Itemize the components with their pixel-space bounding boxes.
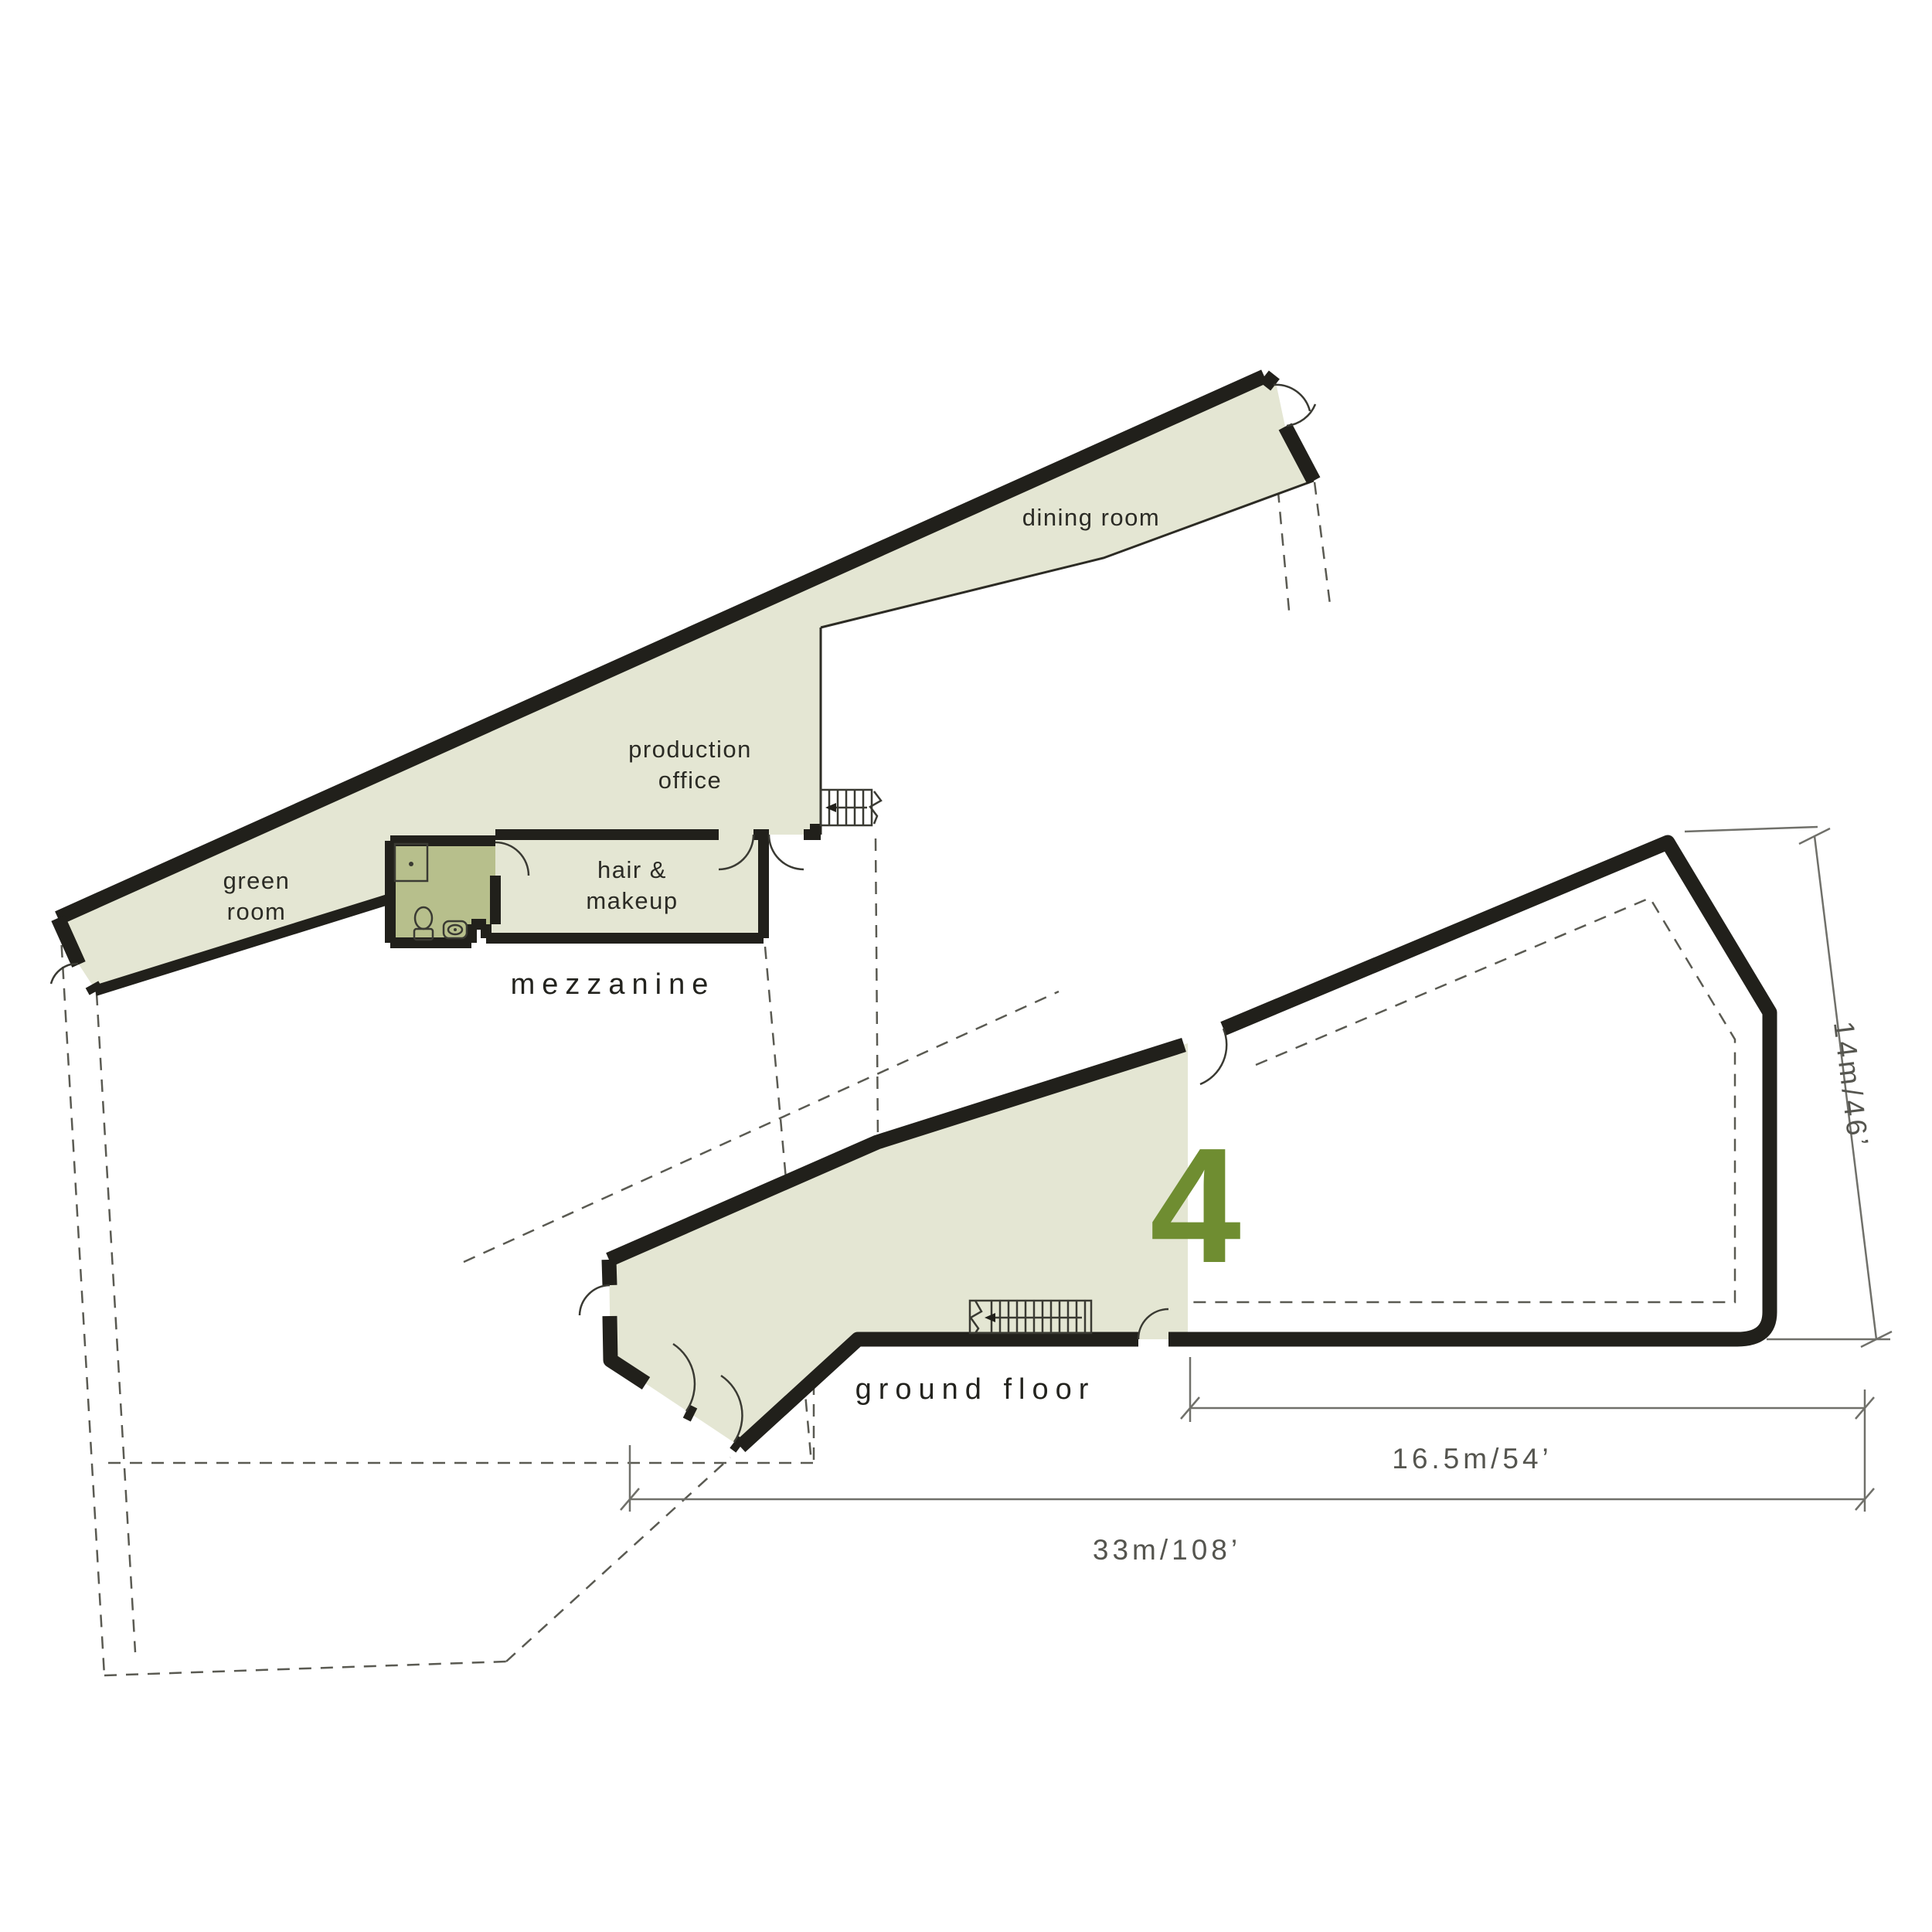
room-label-hair-makeup-line2: makeup — [586, 887, 678, 914]
mezzanine-stairs-icon — [821, 790, 881, 825]
door-swing-icon — [51, 964, 78, 984]
mezzanine-floor-label: mezzanine — [511, 968, 716, 1001]
projection-dashed-line — [1315, 482, 1331, 611]
room-label-green-room-line1: green — [223, 867, 291, 894]
mezzanine-exterior-wall — [1264, 376, 1275, 385]
projection-dashed-line — [876, 838, 878, 1142]
stair-arrow-head — [825, 803, 836, 812]
room-label-dining-room: dining room — [1022, 504, 1160, 531]
dimension-label-partial: 16.5m/54’ — [1392, 1443, 1553, 1475]
ground-floor-exterior-wall — [734, 1442, 740, 1447]
room-label-production-office-line1: production — [628, 736, 752, 763]
door-swing-icon — [580, 1285, 610, 1315]
floor-plan-canvas: green room production office hair & make… — [0, 0, 1932, 1932]
projection-dashed-line — [104, 1662, 506, 1675]
room-label-production-office-line2: office — [658, 767, 723, 794]
ground-floor-exterior-wall — [686, 1411, 694, 1415]
mezzanine-plan: green room production office hair & make… — [51, 376, 1315, 1001]
dimension-label-overall: 33m/108’ — [1093, 1534, 1241, 1566]
door-swing-icon — [1287, 404, 1315, 426]
projection-dashed-line — [1190, 898, 1735, 1302]
dimension-label-side: 14m/46’ — [1828, 1019, 1875, 1151]
shower-drain-icon — [409, 862, 413, 866]
projection-dashed-line — [60, 923, 104, 1675]
door-swing-icon — [769, 835, 804, 869]
ground-floor-exterior-wall — [609, 1260, 610, 1285]
unit-number: 4 — [1150, 1114, 1241, 1297]
door-swing-icon — [1200, 1029, 1226, 1084]
room-label-hair-makeup-line1: hair & — [597, 856, 667, 883]
ground-floor-label: ground floor — [855, 1373, 1096, 1406]
floor-plan-page: green room production office hair & make… — [0, 0, 1932, 1932]
projection-dashed-line — [97, 993, 135, 1652]
dimension-extension-line — [1685, 827, 1818, 832]
room-label-green-room-line2: room — [227, 898, 287, 925]
ground-floor-exterior-wall — [1168, 842, 1770, 1339]
stair-wall-stub — [810, 824, 821, 836]
projection-dashed-line — [506, 1458, 730, 1662]
